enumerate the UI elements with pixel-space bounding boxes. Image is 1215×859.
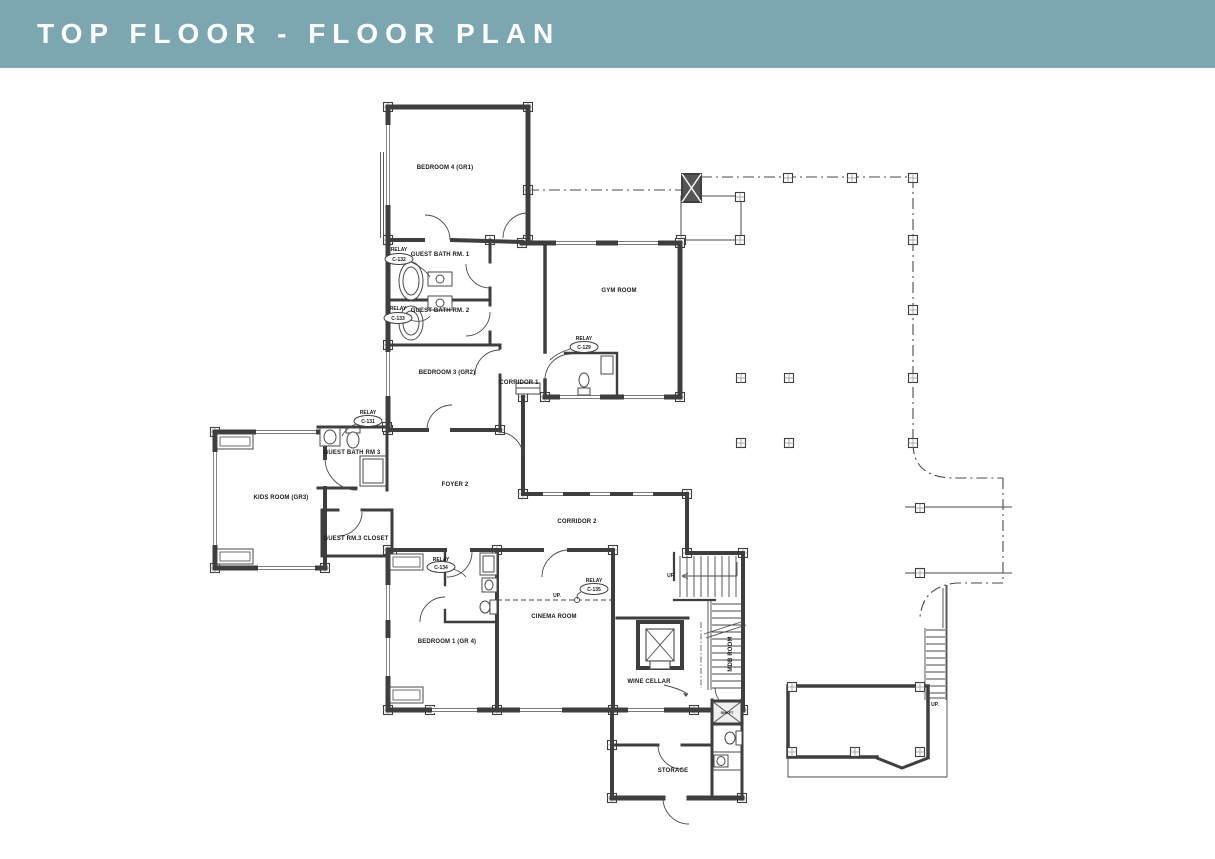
svg-text:RELAY: RELAY [391,247,408,253]
room-label-foyer-2: FOYER 2 [442,482,469,488]
up-label-cinema: UP. [553,593,561,599]
windows [212,125,664,713]
svg-text:RELAY: RELAY [390,306,407,312]
room-label-mdb-room: MDB ROOM [728,636,734,671]
up-label-exterior-stair: UP. [931,702,939,708]
room-label-shaft: SHAFT [721,711,734,715]
lower-stair-flight [701,600,746,690]
svg-text:C-129: C-129 [577,345,591,351]
floor-plan-area: BEDROOM 4 (GR1) GUEST BATH RM. 1 GUEST B… [0,68,1215,859]
room-label-guest-bath-3: GUEST BATH RM 3 [324,450,381,456]
room-labels: BEDROOM 4 (GR1) GUEST BATH RM. 1 GUEST B… [254,165,734,774]
room-label-guest-bath-2: GUEST BATH RM. 2 [411,308,470,314]
page-title: TOP FLOOR - FLOOR PLAN [37,18,560,50]
upper-stair-flight [680,556,737,597]
room-label-corridor-2: CORRIDOR 2 [557,519,597,525]
wine-cellar-leader [664,685,688,694]
room-label-corridor-1: CORRIDOR 1 [499,380,539,386]
svg-text:C-131: C-131 [361,419,375,425]
page: TOP FLOOR - FLOOR PLAN [0,0,1215,859]
svg-text:C-135: C-135 [587,587,601,593]
relay-tag-c129: RELAY C-129 [550,336,598,360]
room-label-cinema-room: CINEMA ROOM [531,614,576,620]
svg-text:C-134: C-134 [434,565,448,571]
room-label-kids-room: KIDS ROOM (GR3) [254,495,309,501]
svg-text:C-132: C-132 [392,257,406,263]
relay-tag-c134: RELAY C-134 [427,557,466,577]
room-label-wine-cellar: WINE CELLAR [627,679,671,685]
elevator [638,622,682,669]
svg-text:C-133: C-133 [391,316,405,322]
room-label-gym-room: GYM ROOM [601,288,636,294]
up-label-main-stair: UP. [667,573,675,579]
room-label-guest-bath-1: GUEST BATH RM. 1 [411,252,470,258]
floor-plan-canvas: BEDROOM 4 (GR1) GUEST BATH RM. 1 GUEST B… [0,68,1215,859]
relay-tag-c135: RELAY C-135 [577,578,608,599]
column-markers [211,103,925,803]
room-label-bedroom-4: BEDROOM 4 (GR1) [417,165,474,171]
walls [215,107,743,798]
room-label-bedroom-3: BEDROOM 3 (GR2) [419,370,476,376]
roof-shaft-icon [682,174,701,202]
title-bar: TOP FLOOR - FLOOR PLAN [0,0,1215,68]
room-label-bedroom-1: BEDROOM 1 (GR 4) [418,639,476,645]
exterior-stair [925,585,946,700]
room-label-guest-rm3-closet: GUEST RM.3 CLOSET [323,536,388,542]
terrace-boundary [528,177,1012,777]
room-label-storage: STORAGE [658,768,689,774]
